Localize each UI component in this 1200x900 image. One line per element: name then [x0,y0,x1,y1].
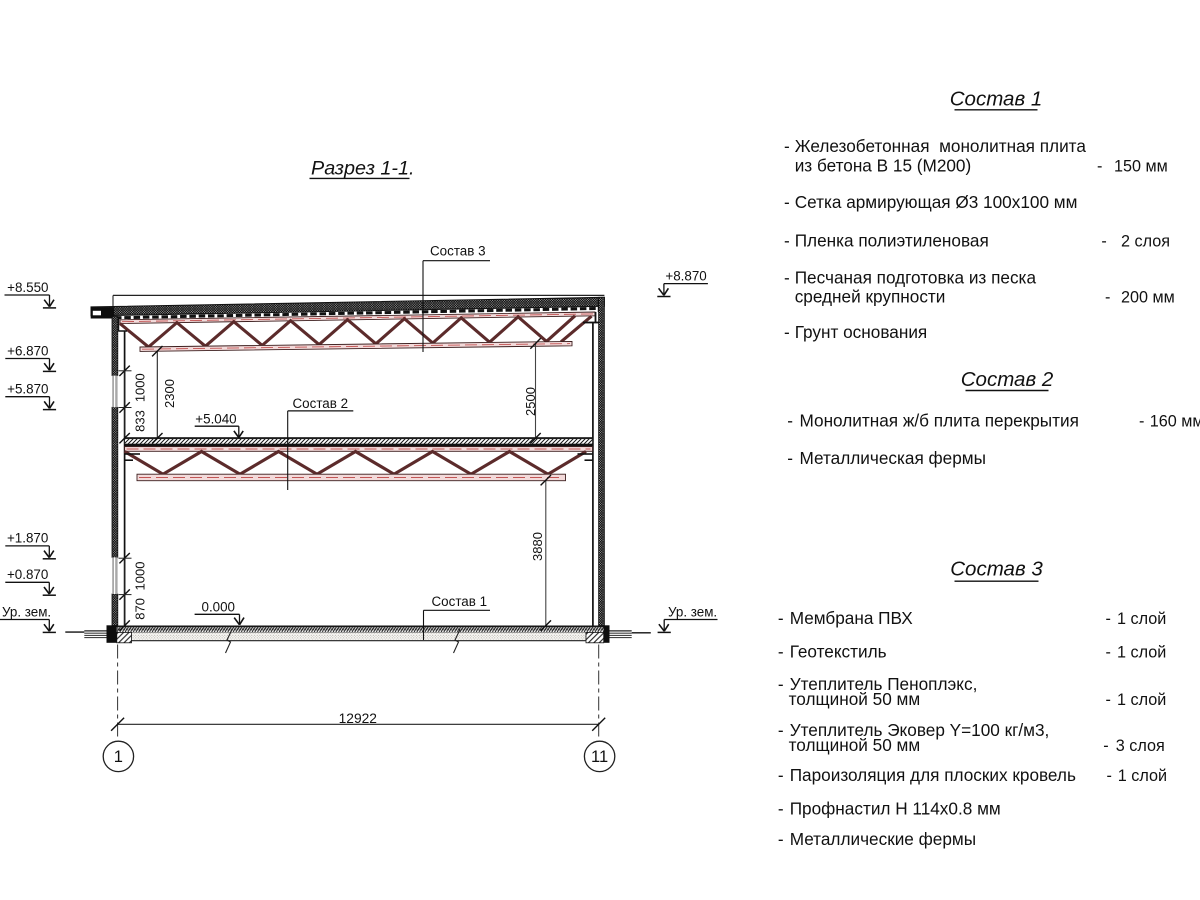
svg-text:833: 833 [132,410,147,432]
svg-text:-: - [1106,644,1111,662]
svg-text:Грунт основания: Грунт основания [795,322,928,342]
svg-text:3 слоя: 3 слоя [1116,737,1165,755]
svg-text:-: - [1107,767,1112,785]
svg-text:-: - [1106,610,1111,628]
svg-text:Пароизоляция для плоских крове: Пароизоляция для плоских кровель [790,765,1076,785]
svg-text:-: - [1139,412,1144,430]
svg-text:+8.550: +8.550 [7,280,48,295]
svg-text:-: - [1106,691,1111,709]
svg-text:Состав 1: Состав 1 [950,87,1043,110]
svg-text:Сетка армирующая Ø3 100х100 мм: Сетка армирующая Ø3 100х100 мм [795,192,1078,212]
svg-text:870: 870 [132,598,147,620]
svg-text:Геотекстиль: Геотекстиль [790,642,887,662]
svg-text:-: - [778,799,784,819]
svg-text:Ур. зем.: Ур. зем. [2,604,51,619]
svg-text:-: - [778,674,784,694]
svg-text:-: - [778,829,784,849]
svg-text:1 слой: 1 слой [1117,610,1166,628]
svg-text:Состав 2: Состав 2 [293,396,349,411]
svg-text:Состав 1: Состав 1 [432,594,488,609]
svg-text:160 мм: 160 мм [1150,412,1200,430]
svg-text:-: - [778,765,784,785]
svg-text:2 слоя: 2 слоя [1121,232,1170,250]
svg-text:11: 11 [591,748,608,766]
svg-text:из бетона В 15 (М200): из бетона В 15 (М200) [795,156,972,176]
svg-text:Металлическая фермы: Металлическая фермы [800,448,986,468]
svg-text:12922: 12922 [339,711,377,726]
svg-text:1: 1 [114,748,123,766]
svg-text:-: - [784,268,790,288]
svg-text:Профнастил Н 114х0.8 мм: Профнастил Н 114х0.8 мм [790,799,1001,819]
svg-text:-: - [778,608,784,628]
svg-text:-: - [784,322,790,342]
svg-text:-: - [778,720,784,740]
svg-text:1 слой: 1 слой [1118,767,1167,785]
svg-text:150 мм: 150 мм [1114,158,1168,176]
svg-text:1000: 1000 [132,373,147,402]
svg-text:1000: 1000 [132,562,147,591]
svg-text:-: - [784,192,790,212]
svg-text:Песчаная подготовка из песка: Песчаная подготовка из песка [795,268,1037,288]
svg-text:Разрез 1-1.: Разрез 1-1. [311,158,415,180]
svg-text:-: - [1101,232,1106,250]
svg-text:-: - [1103,737,1108,755]
svg-text:-: - [787,448,793,468]
svg-text:2300: 2300 [162,379,177,408]
svg-text:+6.870: +6.870 [7,343,48,358]
svg-text:-: - [1097,158,1102,176]
svg-text:Мембрана ПВХ: Мембрана ПВХ [790,608,914,628]
svg-text:Состав 2: Состав 2 [961,368,1054,391]
svg-text:+0.870: +0.870 [7,567,48,582]
svg-text:Состав 3: Состав 3 [950,558,1043,581]
svg-text:-: - [787,410,793,430]
svg-text:-: - [1105,289,1110,307]
svg-text:Железобетонная монолитная пли: Железобетонная монолитная плита [795,136,1087,156]
svg-text:1 слой: 1 слой [1117,644,1166,662]
svg-text:+1.870: +1.870 [7,531,48,546]
svg-text:Металлические фермы: Металлические фермы [790,829,976,849]
svg-text:0.000: 0.000 [202,600,236,615]
svg-text:+5.870: +5.870 [7,382,48,397]
svg-text:200 мм: 200 мм [1121,289,1175,307]
svg-text:3880: 3880 [530,532,545,561]
svg-text:средней крупности: средней крупности [795,287,946,307]
svg-text:1 слой: 1 слой [1117,691,1166,709]
svg-text:2500: 2500 [523,387,538,416]
svg-text:толщиной 50 мм: толщиной 50 мм [789,735,921,755]
svg-text:толщиной 50 мм: толщиной 50 мм [789,689,921,709]
svg-text:-: - [778,642,784,662]
svg-text:Пленка полиэтиленовая: Пленка полиэтиленовая [795,230,989,250]
svg-text:+5.040: +5.040 [195,412,236,427]
svg-text:Монолитная ж/б плита перекрыти: Монолитная ж/б плита перекрытия [800,410,1079,430]
svg-text:Состав 3: Состав 3 [430,243,486,258]
svg-text:-: - [784,136,790,156]
svg-text:Ур. зем.: Ур. зем. [668,604,717,619]
svg-text:-: - [784,230,790,250]
svg-text:+8.870: +8.870 [665,268,706,283]
